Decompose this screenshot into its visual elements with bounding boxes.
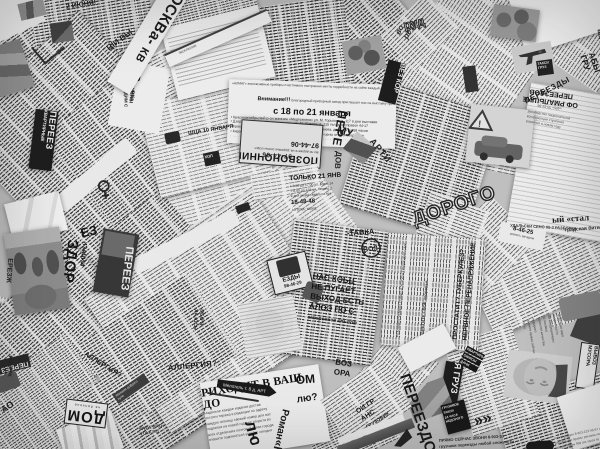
svg-text:ВОЗ: ВОЗ (363, 245, 379, 254)
